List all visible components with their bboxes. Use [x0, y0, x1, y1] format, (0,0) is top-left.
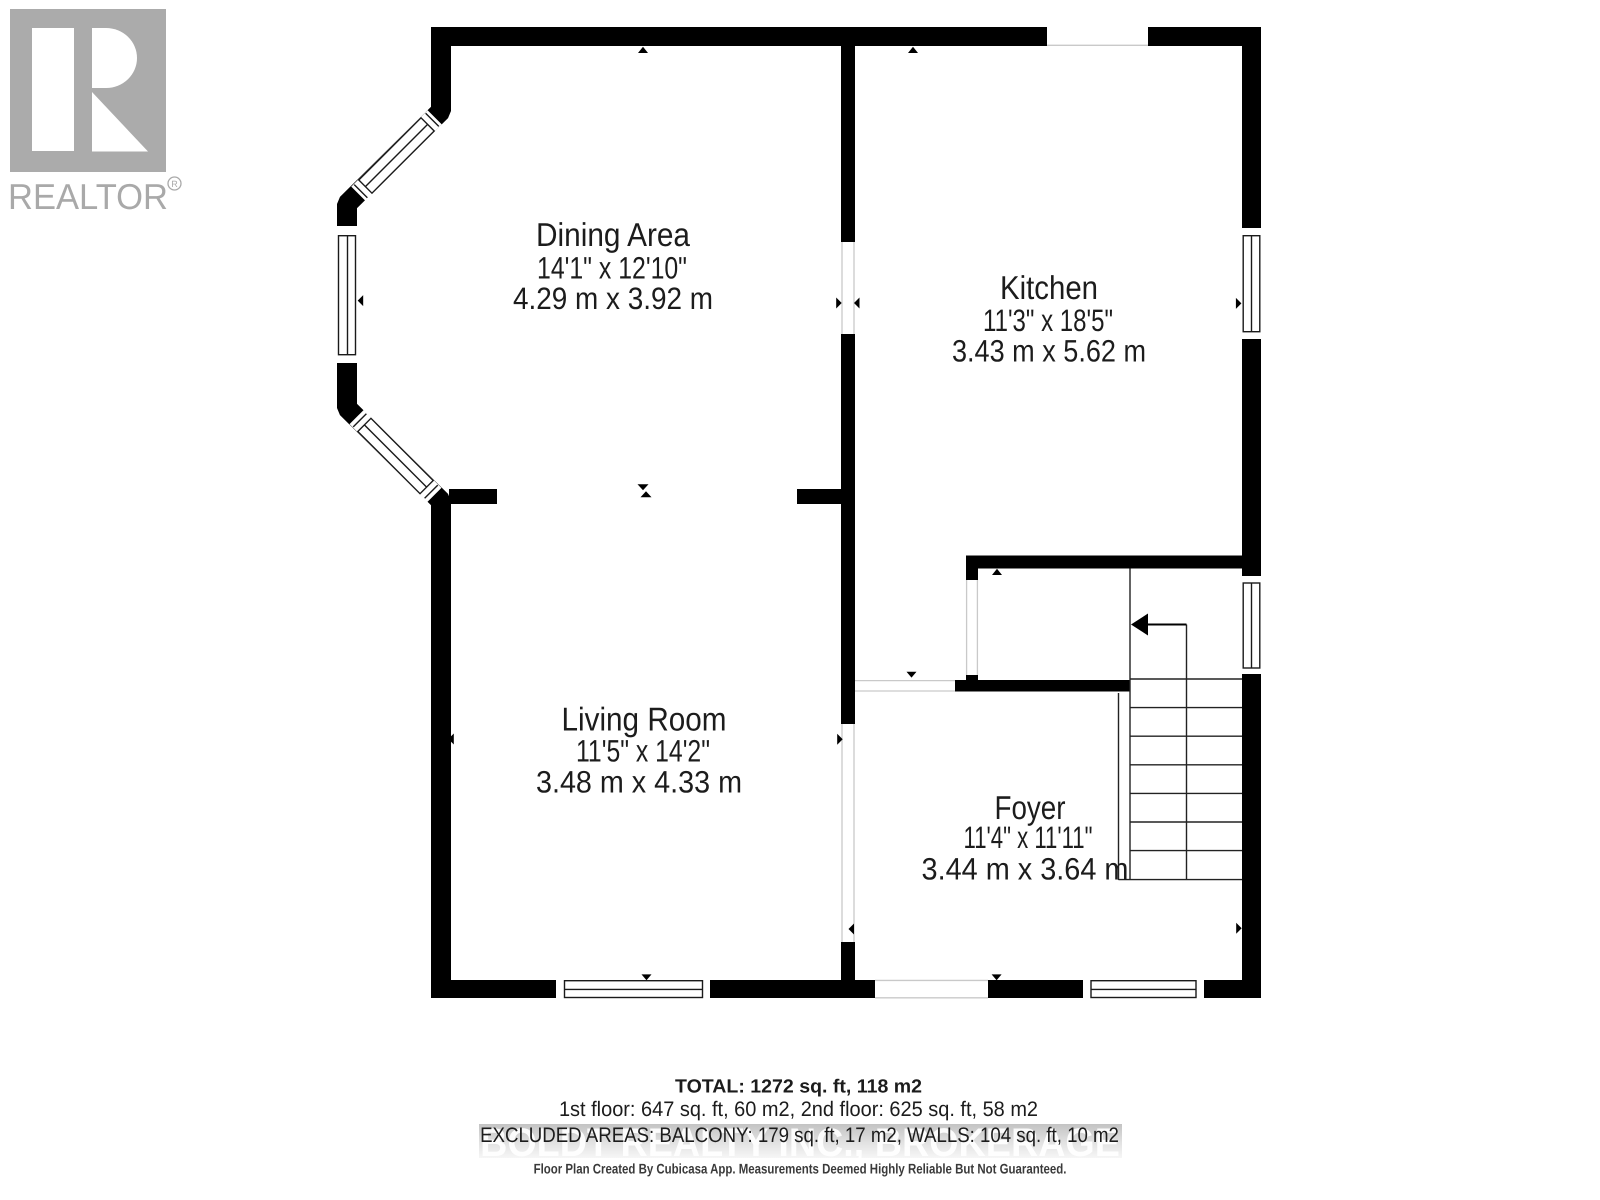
svg-text:EXCLUDED AREAS: BALCONY: 179 s: EXCLUDED AREAS: BALCONY: 179 sq. ft, 17 …: [480, 1124, 1119, 1147]
svg-text:Living Room: Living Room: [561, 701, 726, 738]
svg-text:3.44 m x 3.64 m: 3.44 m x 3.64 m: [922, 852, 1129, 887]
svg-text:REALTOR: REALTOR: [8, 176, 168, 217]
svg-text:11'5" x 14'2": 11'5" x 14'2": [576, 734, 710, 769]
svg-text:Floor Plan Created By Cubicasa: Floor Plan Created By Cubicasa App. Meas…: [534, 1161, 1067, 1177]
svg-text:R: R: [171, 179, 178, 189]
svg-text:Dining Area: Dining Area: [536, 216, 691, 253]
svg-text:11'4" x 11'11": 11'4" x 11'11": [964, 820, 1093, 855]
svg-text:1st floor: 647 sq. ft, 60 m2,: 1st floor: 647 sq. ft, 60 m2, 2nd floor:…: [559, 1098, 1038, 1121]
svg-text:Kitchen: Kitchen: [1000, 269, 1098, 306]
svg-text:3.48 m x 4.33 m: 3.48 m x 4.33 m: [536, 765, 742, 800]
svg-text:TOTAL: 1272 sq. ft, 118 m2: TOTAL: 1272 sq. ft, 118 m2: [675, 1077, 922, 1098]
svg-text:4.29 m x 3.92 m: 4.29 m x 3.92 m: [513, 281, 713, 316]
svg-text:3.43 m x 5.62 m: 3.43 m x 5.62 m: [952, 334, 1146, 369]
